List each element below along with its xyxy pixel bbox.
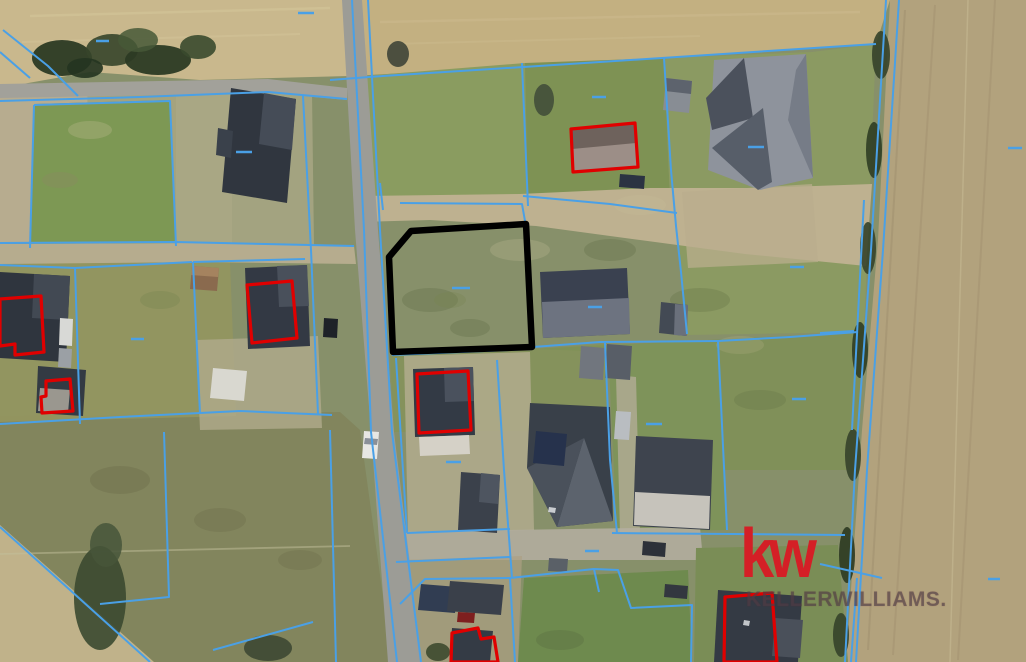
- vegetation-blob: [450, 319, 490, 337]
- car-red-bottom: [457, 612, 475, 623]
- vegetation-blob: [434, 292, 466, 308]
- vegetation-blob: [180, 35, 216, 59]
- house-top-left-wing: [216, 128, 233, 158]
- vegetation-blob: [118, 28, 158, 52]
- vegetation-blob: [536, 630, 584, 650]
- lawn-bottom-mid: [518, 570, 692, 662]
- vegetation-blob: [90, 523, 122, 567]
- vegetation-blob: [734, 390, 786, 410]
- vegetation-blob: [426, 643, 450, 661]
- vegetation-blob: [534, 84, 554, 116]
- car-dark-bottom-b: [664, 584, 688, 599]
- vegetation-blob: [490, 239, 550, 261]
- chimney-dot-bottom-right: [743, 620, 750, 626]
- van-white: [614, 411, 631, 440]
- car-dark-bottom-a: [642, 541, 666, 557]
- vegetation-blob: [845, 429, 861, 481]
- vegetation-blob: [140, 291, 180, 309]
- aerial-map: kw KELLERWILLIAMS.: [0, 0, 1026, 662]
- chimney-dot-hip-house: [548, 507, 556, 513]
- car-gray-bottom: [548, 558, 568, 572]
- courtyard-complex: [682, 184, 818, 268]
- white-pool: [210, 368, 247, 401]
- car-dark-left-house: [323, 318, 338, 338]
- vegetation-blob: [194, 508, 246, 532]
- vegetation-blob: [278, 550, 322, 570]
- vegetation-blob: [68, 121, 112, 139]
- lane-left: [0, 243, 356, 264]
- vegetation-blob: [90, 466, 150, 494]
- map-svg: [0, 0, 1026, 662]
- shed-small-b: [605, 344, 632, 380]
- center-house-roof-light: [542, 298, 630, 338]
- car-dark-top-center: [619, 174, 645, 189]
- vegetation-blob: [42, 172, 78, 188]
- car-white-parked-left: [59, 318, 73, 346]
- house-top-left-roof-facet: [259, 93, 296, 150]
- vegetation-blob: [866, 122, 882, 178]
- right-house-wall: [634, 492, 710, 529]
- shed-small-a: [579, 346, 605, 380]
- bottom-house-roof: [447, 581, 504, 615]
- garage-roof-facet: [479, 473, 500, 504]
- car-gray-parked-left: [58, 348, 72, 368]
- green-mid-top: [362, 63, 528, 205]
- hip-house-solar-panels: [533, 431, 567, 466]
- mid-red-house-patio: [419, 435, 470, 456]
- vegetation-blob: [67, 58, 103, 78]
- vegetation-blob: [387, 41, 409, 67]
- vegetation-blob: [584, 239, 636, 261]
